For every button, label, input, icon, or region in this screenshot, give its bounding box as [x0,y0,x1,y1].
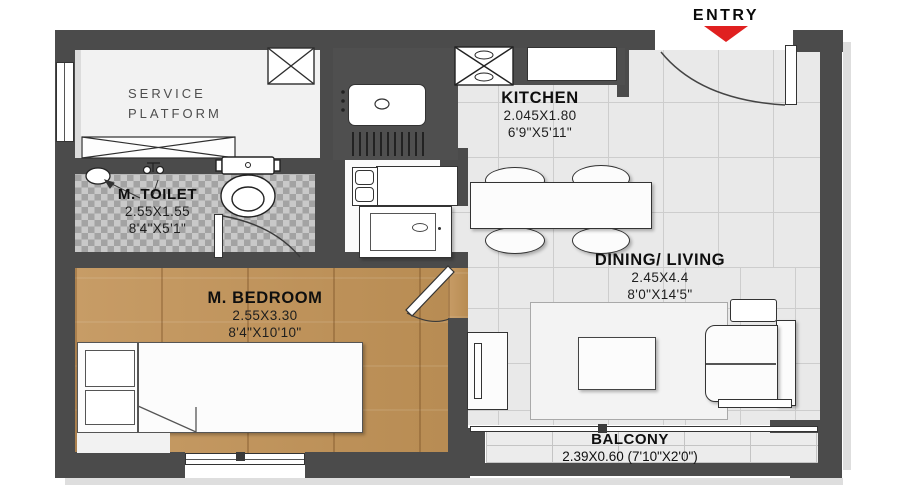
entry-label: ENTRY [666,6,786,26]
wall-bottom-left [55,452,185,478]
dining-table [470,182,652,229]
wall-bottom-mid [305,452,470,478]
sofa-back [776,320,796,406]
left-window-mid [64,63,65,141]
dining-chair-bottom-left [485,227,545,254]
tv-unit [467,332,508,410]
wall-toilet-top [75,158,333,174]
washing-machine [359,206,452,258]
window-mid-line [186,459,304,460]
entry-arrow-icon [704,26,748,42]
wall-shadow-bottom [65,478,843,485]
wall-right [820,30,842,425]
wall-shadow-right [843,42,851,470]
washer-dot [438,227,441,230]
dining-living-label: DINING/ LIVING 2.45X4.4 8'0"X14'5" [545,250,775,303]
window-latch [236,452,245,461]
toilet-dim-ft: 8'4"X5'1" [75,221,240,237]
bedroom-name: M. BEDROOM [160,288,370,308]
floor-plan: ENTRY SERVICE PLATFORM KITCHEN 2.045X1.8… [0,0,900,500]
toilet-dim-m: 2.55X1.55 [75,204,240,220]
bedroom-door-threshold [448,268,468,318]
bedroom-dim-m: 2.55X3.30 [160,308,370,324]
coffee-table [578,337,656,390]
wall-balcony-right [818,433,842,467]
washbasin-unit [352,167,378,206]
toilet-name: M. TOILET [75,186,240,204]
bedroom-label: M. BEDROOM 2.55X3.30 8'4"X10'10" [160,288,370,341]
wall-bedroom-living [448,318,468,455]
entry-text: ENTRY [666,6,786,26]
bedroom-window [185,453,305,465]
balcony-dim: 2.39X0.60 (7'10"X2'0") [480,449,780,465]
basin-bottom [355,187,374,202]
basin-top [355,170,374,185]
entry-door-leaf [785,45,797,105]
drainboard [352,132,424,156]
kitchen-dim-m: 2.045X1.80 [440,108,640,124]
kitchen-dim-ft: 6'9"X5'11" [440,125,640,141]
nightstand-bottom [85,390,135,425]
wall-bottom-right-corner [790,463,842,478]
bed-mat [77,433,170,453]
kitchen-name: KITCHEN [440,88,640,108]
tv-panel [474,343,482,399]
sofa-seat [705,325,778,402]
washer-lid [370,213,436,251]
dining-dim-ft: 8'0"X14'5" [545,287,775,303]
sofa-seat-divider [706,363,776,365]
toilet-label: M. TOILET 2.55X1.55 8'4"X5'1" [75,186,240,237]
service-line2: PLATFORM [128,104,288,124]
wall-toilet-right [315,158,345,266]
dining-dim-m: 2.45X4.4 [545,270,775,286]
balcony-label: BALCONY 2.39X0.60 (7'10"X2'0") [480,431,780,466]
kitchen-counter-white [527,47,617,81]
sofa-front-edge [718,399,792,408]
bedroom-dim-ft: 8'4"X10'10" [160,325,370,341]
wash-counter [376,166,458,206]
kitchen-sink [348,84,426,126]
left-window [56,62,74,142]
bed-headboard-line [137,342,139,433]
nightstand-top [85,350,135,387]
kitchen-label: KITCHEN 2.045X1.80 6'9"X5'11" [440,88,640,141]
balcony-name: BALCONY [480,431,780,449]
dining-name: DINING/ LIVING [545,250,775,270]
service-line1: SERVICE [128,84,288,104]
service-platform-label: SERVICE PLATFORM [128,84,288,124]
washer-knob [412,223,428,232]
